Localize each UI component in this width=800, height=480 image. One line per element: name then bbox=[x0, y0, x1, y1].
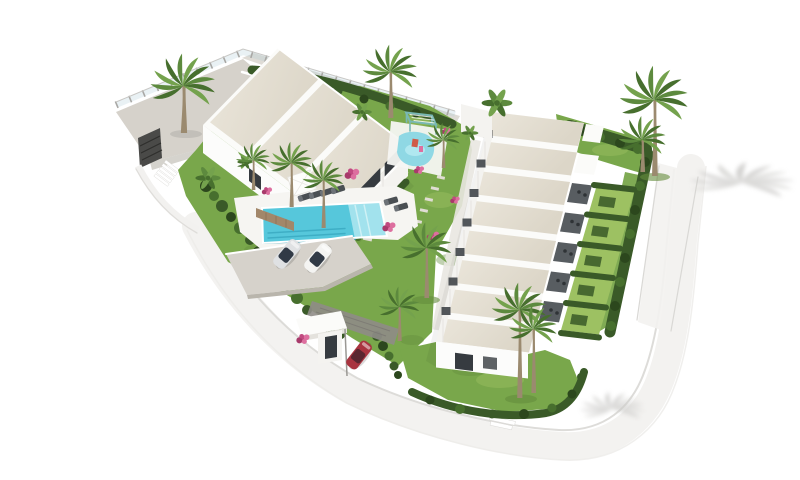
architectural-render: Aerial 3D architectural rendering, isola… bbox=[0, 0, 800, 480]
play-slide bbox=[419, 146, 423, 152]
play-structure bbox=[411, 139, 418, 148]
render-canvas: Aerial 3D architectural rendering, isola… bbox=[0, 0, 800, 480]
entrance-door bbox=[325, 335, 337, 359]
south-facade-window bbox=[483, 356, 497, 370]
south-facade-door bbox=[455, 353, 473, 371]
